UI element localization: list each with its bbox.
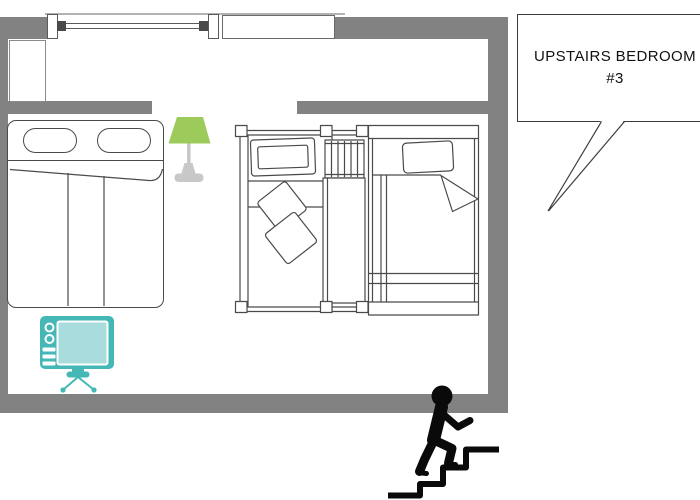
window-glass [66,23,200,29]
tv-screen [58,322,108,365]
tv-foot-left [60,387,65,392]
single-bed-left-pillow [250,138,315,176]
figure-back-leg [420,440,435,472]
lamp-stem [187,143,191,167]
cushion-1 [257,181,308,232]
cushion-2 [264,211,317,264]
single-bed-left [240,131,332,312]
tv-vent-2 [43,355,56,359]
floor-plan-canvas: UPSTAIRS BEDROOM #3 [0,0,700,500]
callout-line2: #3 [606,68,624,90]
cabinet [9,40,46,102]
tv-knob-2 [46,335,54,343]
figure-arm [443,414,470,427]
figure-back-foot [418,473,427,474]
window-handle-left [57,21,66,31]
bunk-ladder [323,131,365,312]
bunk-rail-column [323,178,365,303]
double-bed-pillow-left [23,128,77,153]
tv-foot-right [91,387,96,392]
wall-stub-right [297,101,488,114]
lamp-base [175,174,204,183]
double-bed-headboard-line [8,160,163,161]
tv-stand-bar [67,372,90,378]
single-bed-right [369,126,479,316]
lamp-pedestal [181,163,196,175]
tv [40,316,114,393]
window-casement-cap-right [208,14,219,39]
window-handle-right [199,21,208,31]
tv-vent-1 [43,348,56,352]
single-bed-right-pillow [402,141,454,174]
table-lamp [169,117,211,182]
callout-line1: UPSTAIRS BEDROOM [534,46,696,68]
callout-tail [548,120,625,212]
lamp-shade [169,117,211,144]
tv-body [40,316,114,369]
wall-right [488,17,508,413]
tv-knob-1 [46,324,54,332]
stairs [388,450,499,496]
blanket-fold [441,176,478,212]
window-plain [222,15,335,39]
tv-legs [64,377,94,390]
wall-top-right [335,17,508,39]
wall-bottom [0,394,508,413]
bed-posts [236,126,369,313]
callout-bubble: UPSTAIRS BEDROOM #3 [517,14,700,122]
tv-neck [72,367,84,373]
double-bed-pillow-right [97,128,151,153]
tv-vent-3 [43,362,56,366]
wall-stub-left [8,101,152,114]
figure-front-leg [434,440,452,463]
